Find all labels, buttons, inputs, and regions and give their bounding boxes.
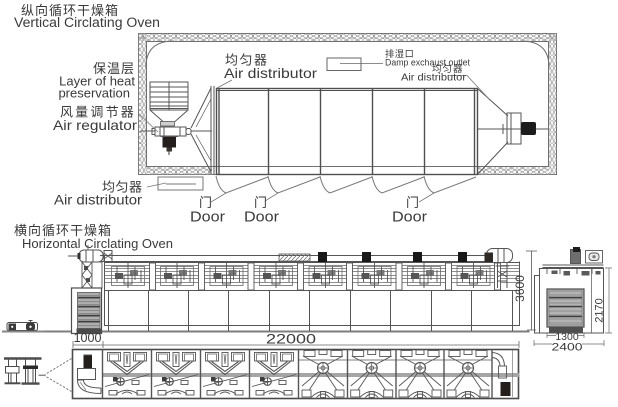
svg-text:Air distributor: Air distributor bbox=[401, 73, 467, 84]
svg-text:Door: Door bbox=[190, 209, 225, 226]
svg-text:2400: 2400 bbox=[552, 342, 583, 354]
svg-text:Air distributor: Air distributor bbox=[54, 192, 142, 208]
svg-text:22000: 22000 bbox=[266, 331, 316, 347]
svg-text:1000: 1000 bbox=[74, 331, 102, 345]
svg-text:2170: 2170 bbox=[594, 298, 606, 322]
svg-text:preservation: preservation bbox=[58, 86, 130, 101]
svg-text:Horizontal Circlating Oven: Horizontal Circlating Oven bbox=[22, 236, 173, 251]
svg-text:Door: Door bbox=[392, 209, 427, 226]
svg-text:Vertical Circlating Oven: Vertical Circlating Oven bbox=[14, 15, 160, 30]
svg-text:Door: Door bbox=[244, 209, 279, 226]
svg-text:Air regulator: Air regulator bbox=[53, 117, 137, 133]
svg-text:3600: 3600 bbox=[513, 275, 527, 302]
svg-text:Air distributor: Air distributor bbox=[224, 65, 317, 81]
